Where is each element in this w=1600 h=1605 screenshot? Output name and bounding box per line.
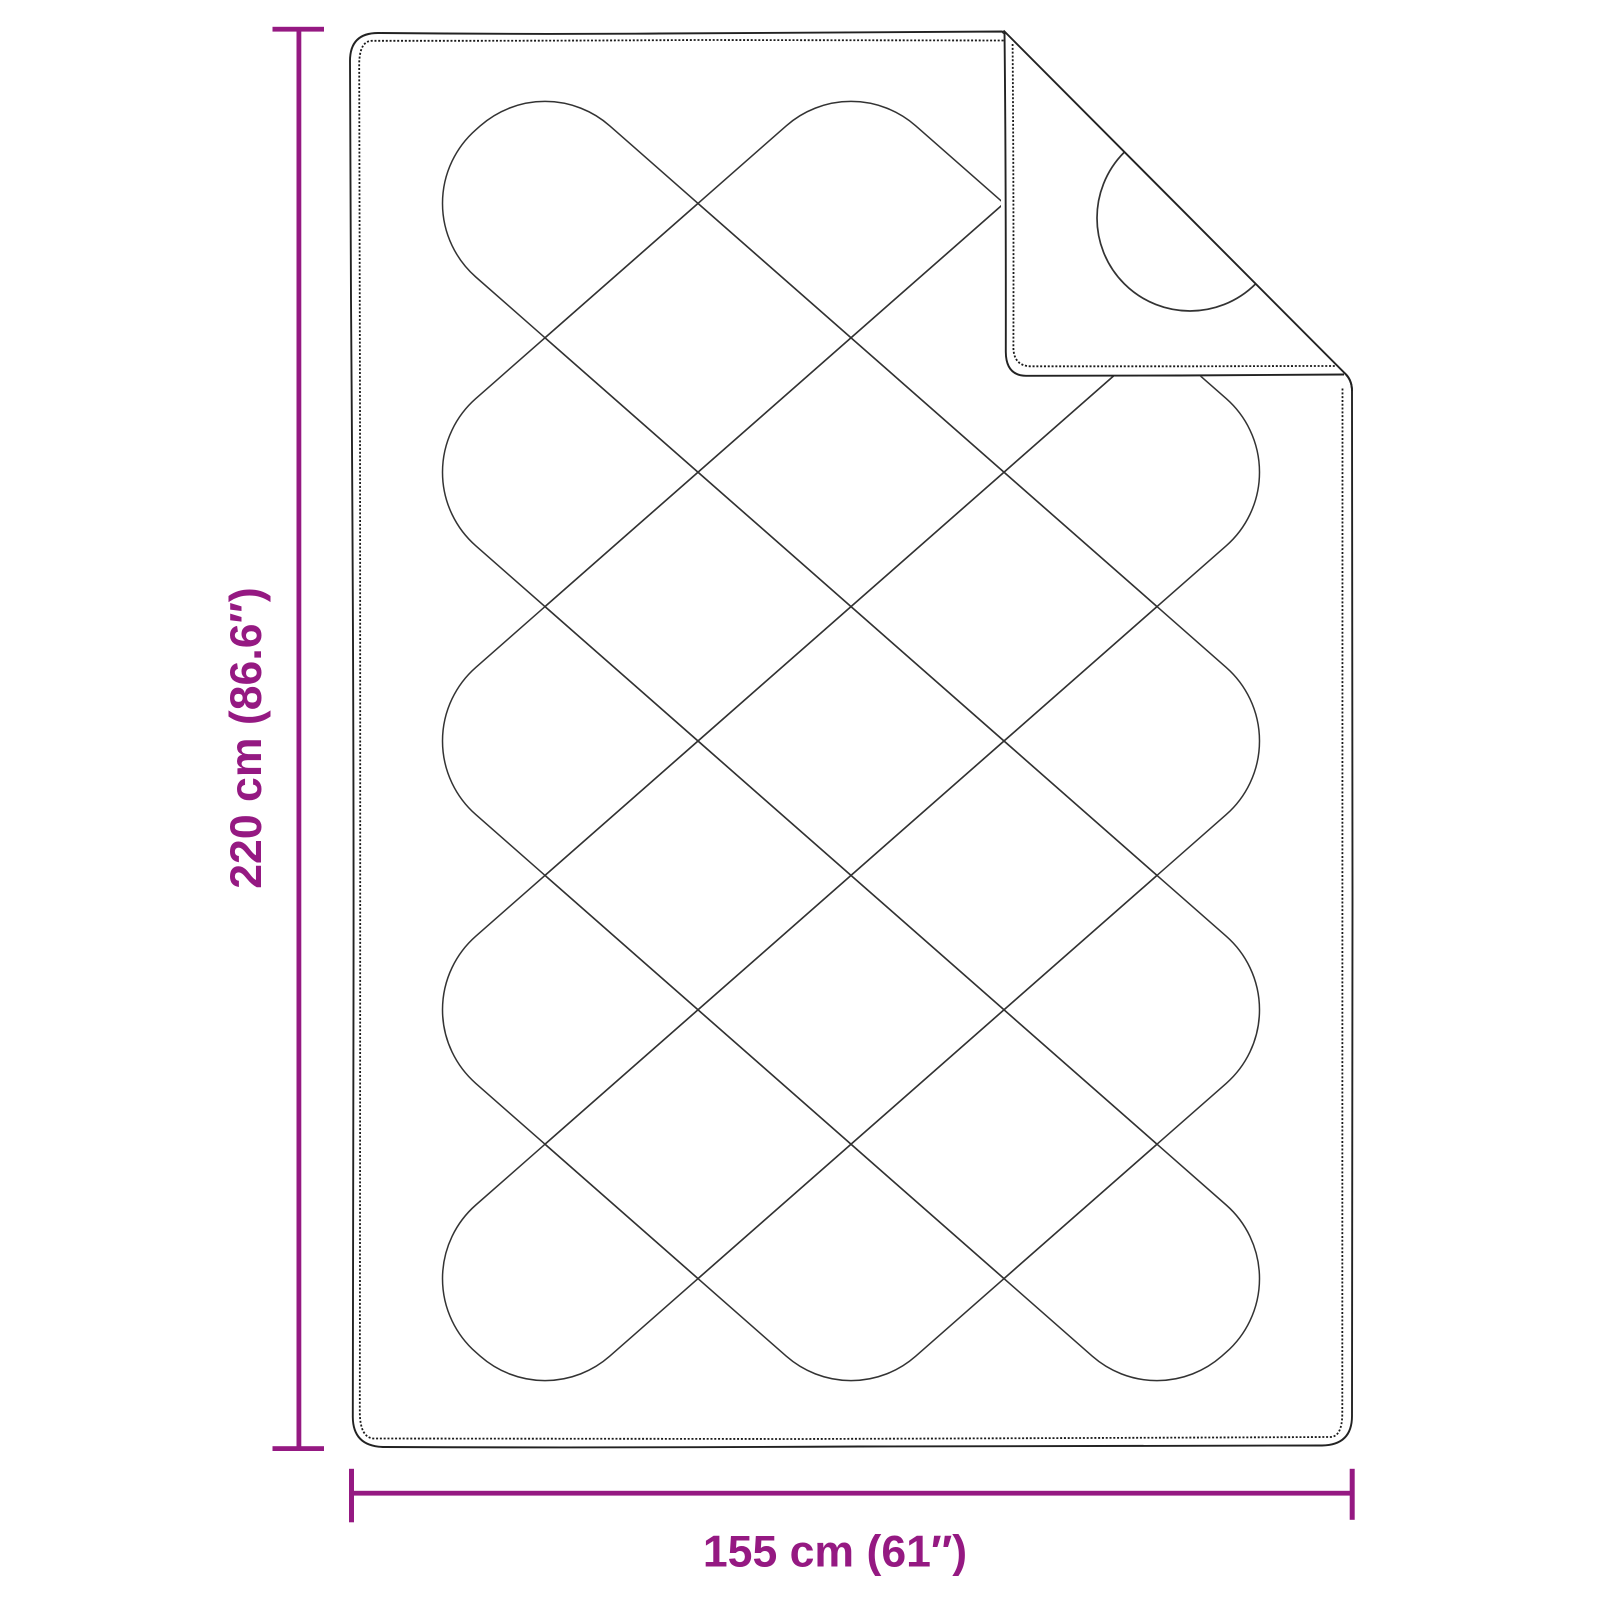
svg-text:220 cm (86.6″): 220 cm (86.6″) xyxy=(222,587,271,889)
svg-text:155 cm (61″): 155 cm (61″) xyxy=(703,1528,967,1577)
